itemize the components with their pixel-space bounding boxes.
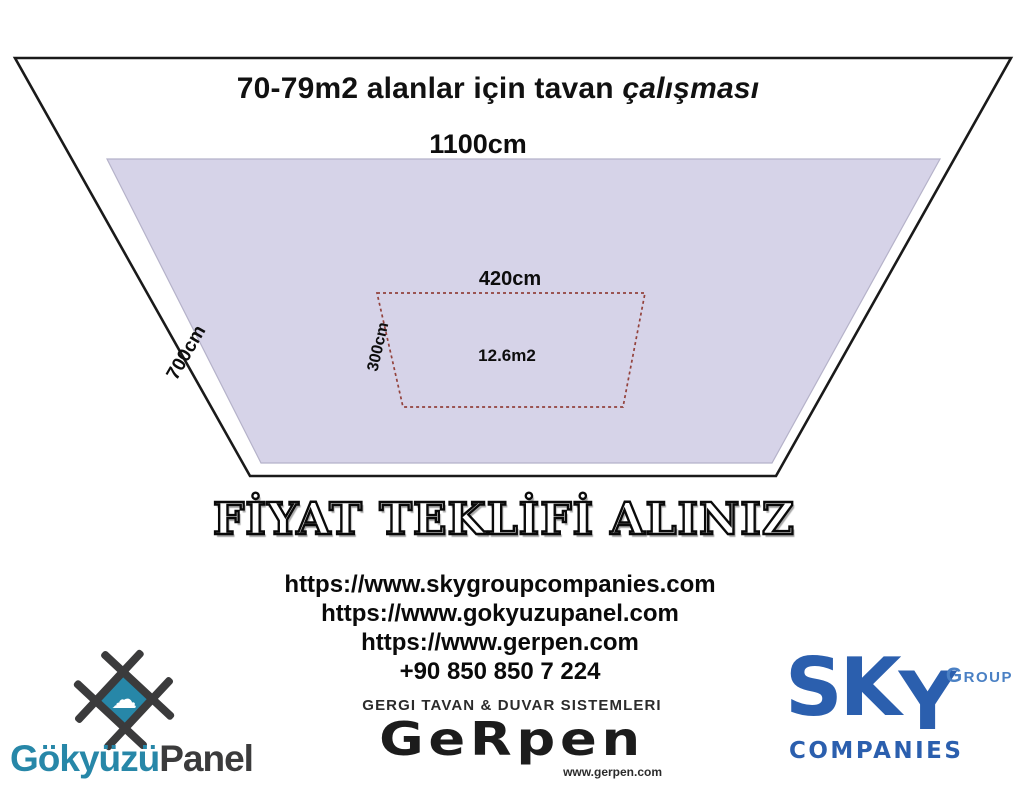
dimension-label-inner-width: 420cm	[430, 268, 590, 291]
page-title: 70-79m2 alanlar için tavan çalışması	[0, 72, 996, 106]
gokyuzu-text: Gökyüzü	[10, 738, 159, 779]
inner-area-label: 12.6m2	[427, 346, 587, 366]
cta-headline: FİYAT TEKLİFİ ALINIZ	[0, 494, 1008, 545]
sky-letter-k: K	[840, 641, 899, 734]
panel-text: Panel	[159, 738, 253, 779]
cloud-icon: ☁	[111, 687, 137, 713]
sky-letter-s: S	[785, 641, 840, 734]
link-skygroupcompanies[interactable]: https://www.skygroupcompanies.com	[0, 570, 1000, 599]
gerpen-wordmark: GeRpen	[309, 716, 715, 762]
sky-companies-text: COMPANIES	[789, 738, 963, 764]
ceiling-panel-area	[107, 159, 940, 463]
sky-wordmark: SKY	[785, 648, 954, 728]
sky-group-logo: SKY GROUP COMPANIES	[785, 656, 1017, 781]
page-title-emphasis: çalışması	[622, 72, 759, 105]
page-title-main: 70-79m2 alanlar için tavan	[237, 72, 623, 105]
gerpen-website: www.gerpen.com	[563, 765, 662, 779]
poster-page: 70-79m2 alanlar için tavan çalışması 110…	[0, 0, 1024, 785]
gokyuzupanel-logo: ☁ GökyüzüPanel	[8, 660, 268, 780]
gokyuzupanel-wordmark: GökyüzüPanel	[10, 738, 253, 780]
link-gokyuzupanel[interactable]: https://www.gokyuzupanel.com	[0, 599, 1000, 628]
sky-group-text: GROUP	[946, 664, 1013, 688]
gerpen-logo: GERGI TAVAN & DUVAR SISTEMLERI GeRpen ww…	[340, 697, 684, 762]
dimension-label-top-width: 1100cm	[378, 129, 578, 160]
